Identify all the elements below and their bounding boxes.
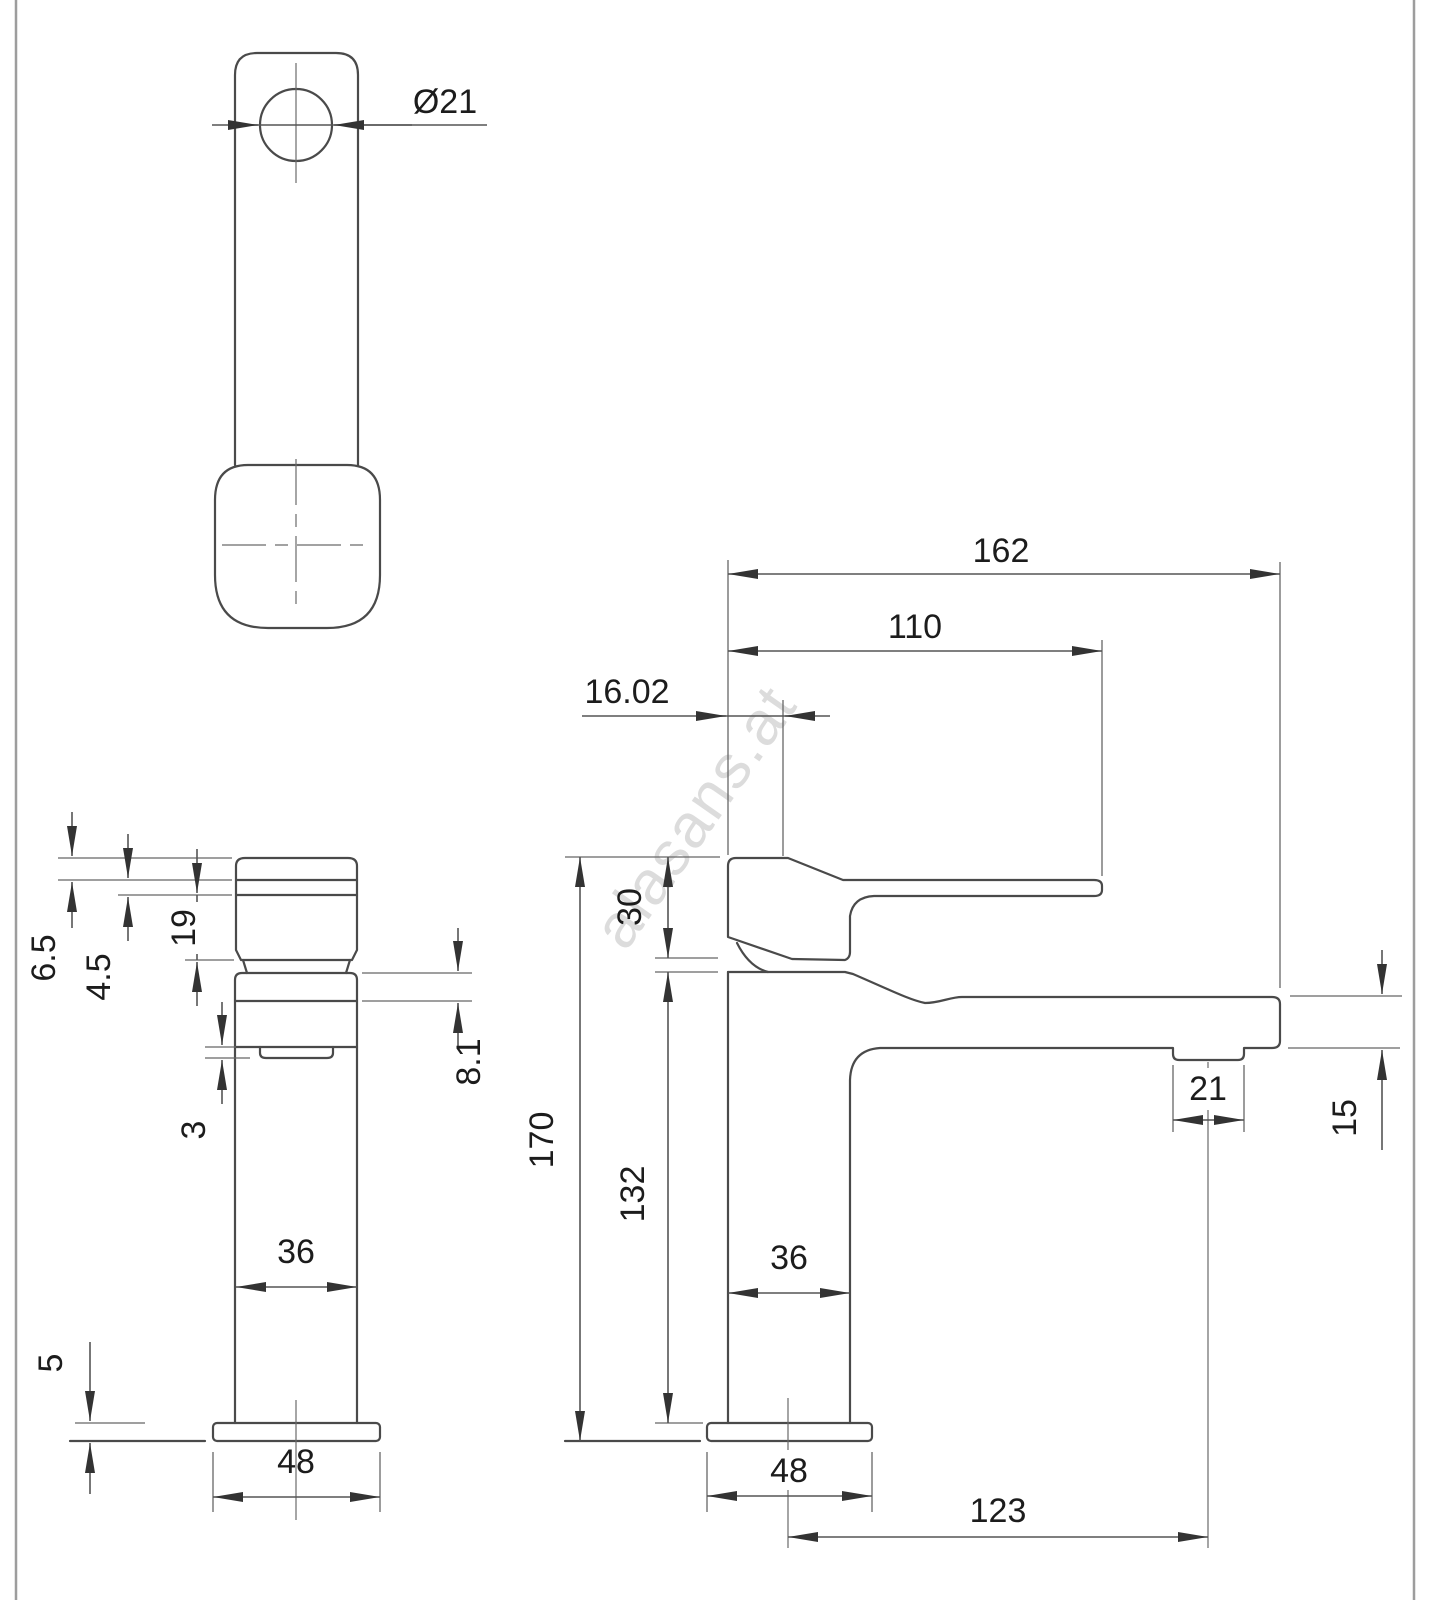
side-base-plate (707, 1423, 872, 1441)
dim-ring-label: 4.5 (80, 953, 118, 1000)
hole-dia-label: Ø21 (413, 83, 477, 121)
top-view-body-outline (215, 465, 380, 628)
dim-offset-label: 16.02 (584, 673, 669, 711)
cad-drawing-canvas: alasans.at Ø21 (0, 0, 1430, 1600)
dim-front-width-label: 36 (277, 1233, 315, 1271)
front-body-outline (235, 973, 357, 1423)
dim-rise-label: 30 (611, 888, 649, 926)
drawing-page: alasans.at Ø21 (0, 0, 1430, 1600)
front-neck-left (243, 960, 247, 973)
dim-handle-label: 19 (165, 909, 203, 947)
dim-cap-label: 6.5 (25, 934, 63, 981)
top-view: Ø21 (212, 53, 487, 628)
dim-base-h-label: 5 (32, 1354, 70, 1373)
dim-projection-label: 123 (970, 1492, 1027, 1530)
front-handle-outline (236, 858, 357, 960)
front-neck-right (346, 960, 350, 973)
dim-lip-label: 3 (175, 1121, 213, 1140)
front-aerator-outline (260, 1047, 333, 1058)
dim-reach-label: 162 (973, 532, 1030, 570)
side-view: 162 110 16.02 30 170 132 36 21 (523, 532, 1402, 1548)
dim-ledge-label: 8.1 (450, 1038, 488, 1085)
dim-aerator-label: 21 (1189, 1070, 1227, 1108)
side-pivot-arc (737, 943, 768, 972)
side-handle-outline (728, 858, 1102, 960)
dim-depth-label: 36 (770, 1239, 808, 1277)
side-body-spout-outline (728, 972, 1280, 1423)
dim-height-total-label: 170 (523, 1112, 561, 1169)
front-view: 6.5 4.5 19 3 8.1 36 5 (25, 812, 488, 1520)
dim-lever-label: 110 (888, 608, 942, 646)
dim-front-base-label: 48 (277, 1443, 315, 1481)
dim-tip-label: 15 (1326, 1099, 1364, 1137)
dim-height-body-label: 132 (614, 1166, 652, 1223)
dim-side-base-label: 48 (770, 1452, 808, 1490)
